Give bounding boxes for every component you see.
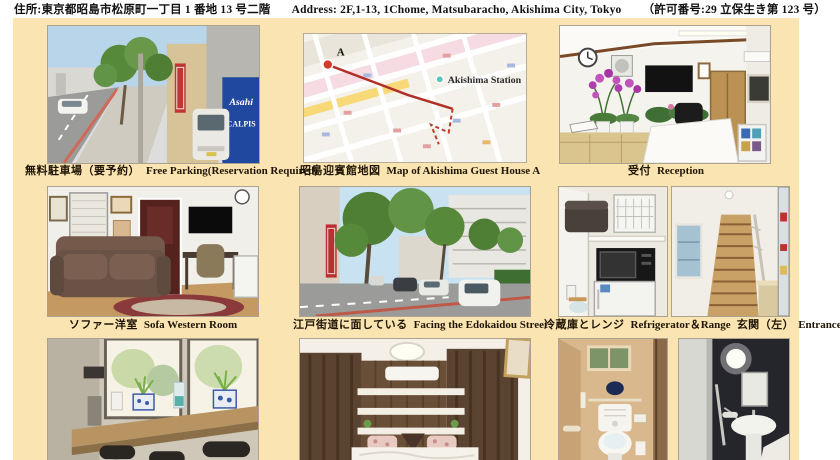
station-dot (436, 76, 443, 83)
brown-sofa (50, 236, 171, 297)
map-destination-pin (323, 60, 333, 70)
address-japanese: 住所:東京都昭島市松原町一丁目 1 番地 13 号二階 (14, 4, 270, 16)
calpis-logo-text: CALPIS (227, 120, 257, 129)
ceiling-light (390, 343, 424, 361)
reception-illustration (560, 26, 770, 163)
grab-bar (563, 426, 581, 432)
white-shelf-3 (358, 428, 465, 435)
ceiling-light (726, 349, 746, 369)
air-conditioner (385, 367, 439, 381)
mini-fridge (234, 256, 258, 297)
dark-car (393, 278, 417, 292)
sofa-room-illustration (48, 187, 258, 316)
access-map-illustration: A Akishima Station (304, 34, 526, 162)
window-counter-illustration (48, 339, 258, 460)
wall-tv (645, 65, 693, 92)
bathroom-illustration (679, 339, 789, 460)
clock (235, 190, 249, 204)
office-chair (675, 103, 703, 125)
bedroom-illustration (300, 339, 530, 460)
mug (111, 392, 122, 410)
blue-wall-object (606, 381, 624, 395)
mirror-cabinet (742, 372, 768, 405)
wall-picture (505, 339, 530, 377)
paper-holder (634, 414, 647, 423)
photo-toilet (558, 338, 668, 460)
address-header: 住所:東京都昭島市松原町一丁目 1 番地 13 号二階 Address: 2F,… (0, 1, 840, 17)
photo-window-counter (47, 338, 259, 460)
shelf (588, 236, 665, 241)
photo-bedroom (299, 338, 531, 460)
glass-door (778, 187, 789, 316)
address-english: Address: 2F,1-13, 1Chome, Matsubaracho, … (292, 4, 622, 16)
paper-roll (636, 441, 646, 455)
photo-free-parking: Asahi CALPIS (47, 25, 260, 164)
entry-counter (759, 284, 780, 316)
wall-frame (699, 63, 710, 78)
toilet-illustration (559, 339, 667, 460)
caption-fridge-entrance: 冷蔵庫とレンジRefrigerator＆Range玄関（左）Entrance (… (544, 318, 802, 334)
wall-picture-2 (111, 197, 131, 213)
photo-sofa-room (47, 186, 259, 317)
caption-map: 昭島迎賓館地図Map of Akishima Guest House A (300, 164, 530, 180)
station-label: Akishima Station (448, 75, 522, 86)
white-shelf-1 (358, 388, 465, 395)
photo-access-map: A Akishima Station (303, 33, 527, 163)
ceiling-light (679, 31, 750, 36)
photo-bathroom (678, 338, 790, 460)
caption-street: 江戸街道に面しているFacing the Edokaidou Street (293, 318, 537, 334)
photo-refrigerator-range (558, 186, 668, 317)
door-sticker-red (780, 213, 787, 222)
ceiling-light (725, 191, 733, 199)
photo-edokaidou-street (299, 186, 531, 317)
window (748, 75, 770, 102)
guesthouse-photo-flyer: 住所:東京都昭島市松原町一丁目 1 番地 13 号二階 Address: 2F,… (0, 0, 840, 460)
wicker-chair (197, 244, 225, 277)
air-conditioner (744, 52, 770, 62)
caption-sofa-room: ソファー洋室Sofa Western Room (47, 318, 259, 334)
street-illustration (300, 187, 530, 316)
shelf-items (84, 367, 106, 379)
towel-holder (581, 392, 586, 408)
caption-free-parking: 無料駐車場（要予約）Free Parking(Reservation Requi… (25, 164, 310, 180)
map-marker-a: A (337, 47, 345, 59)
wall-tv (189, 207, 233, 234)
entrance-illustration (672, 187, 789, 316)
caption-reception: 受付Reception (560, 164, 772, 180)
utility-pole (138, 54, 143, 163)
permit-number: （許可番号:29 立保生き第 123 号） (643, 4, 826, 16)
shower-panel (679, 339, 707, 460)
wall-picture (50, 197, 67, 221)
beige-cabinet (560, 132, 653, 163)
photo-entrance-stairs (671, 186, 790, 317)
fridge-illustration (559, 187, 667, 316)
window (676, 224, 702, 277)
photo-reception (559, 25, 771, 164)
free-parking-illustration: Asahi CALPIS (48, 26, 259, 163)
white-shelf-2 (358, 408, 465, 415)
asahi-logo-text: Asahi (228, 97, 253, 108)
